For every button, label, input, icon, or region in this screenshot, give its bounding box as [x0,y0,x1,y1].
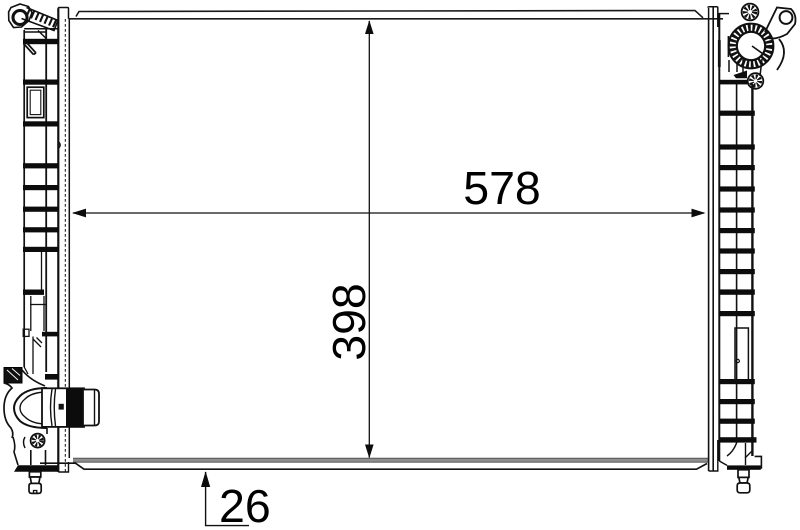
svg-text:26: 26 [219,480,271,530]
svg-text:398: 398 [323,283,375,361]
svg-text:578: 578 [463,162,541,214]
